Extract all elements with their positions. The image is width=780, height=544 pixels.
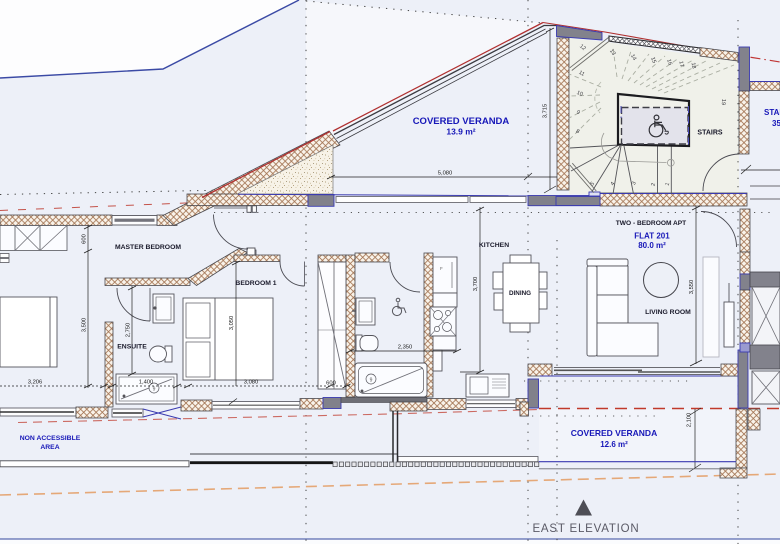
svg-text:2,100: 2,100: [687, 413, 693, 428]
svg-text:5,080: 5,080: [438, 171, 453, 177]
svg-text:BEDROOM 1: BEDROOM 1: [235, 280, 276, 287]
svg-text:17: 17: [677, 61, 684, 68]
svg-text:TWO - BEDROOM APT: TWO - BEDROOM APT: [616, 220, 686, 227]
svg-text:ENSUITE: ENSUITE: [117, 344, 147, 351]
svg-text:KITCHEN: KITCHEN: [479, 242, 509, 249]
svg-text:3,700: 3,700: [473, 277, 479, 292]
svg-text:80.0 m²: 80.0 m²: [638, 241, 666, 250]
svg-text:MASTER BEDROOM: MASTER BEDROOM: [115, 244, 181, 251]
svg-text:3,206: 3,206: [28, 380, 43, 386]
svg-text:DINING: DINING: [509, 290, 531, 297]
svg-text:EAST ELEVATION: EAST ELEVATION: [532, 523, 639, 535]
svg-text:FLAT 201: FLAT 201: [634, 232, 670, 241]
svg-text:STAIR: STAIR: [764, 108, 780, 117]
svg-text:3,080: 3,080: [244, 380, 259, 386]
svg-text:STAIRS: STAIRS: [697, 130, 722, 137]
svg-text:19: 19: [720, 99, 727, 106]
svg-text:AREA: AREA: [40, 444, 59, 451]
svg-text:LIVING ROOM: LIVING ROOM: [645, 309, 691, 316]
svg-text:600: 600: [326, 381, 336, 387]
svg-text:3,500: 3,500: [82, 318, 88, 333]
svg-text:600: 600: [82, 234, 88, 244]
svg-text:3,715: 3,715: [543, 104, 549, 119]
svg-text:COVERED VERANDA: COVERED VERANDA: [413, 116, 510, 127]
svg-text:9: 9: [153, 386, 156, 392]
svg-text:18: 18: [690, 62, 697, 69]
svg-text:F: F: [440, 266, 443, 271]
svg-text:NON ACCESSIBLE: NON ACCESSIBLE: [20, 435, 81, 442]
svg-text:13.9 m²: 13.9 m²: [446, 127, 475, 137]
svg-text:1,400: 1,400: [139, 380, 154, 386]
svg-text:3,550: 3,550: [689, 280, 695, 295]
svg-text:3,050: 3,050: [229, 316, 235, 331]
svg-text:9: 9: [370, 377, 373, 383]
svg-text:35: 35: [772, 119, 780, 128]
svg-text:12.6 m²: 12.6 m²: [600, 440, 628, 449]
svg-text:2,750: 2,750: [126, 323, 132, 338]
svg-text:2,350: 2,350: [398, 345, 413, 351]
svg-text:COVERED VERANDA: COVERED VERANDA: [571, 428, 657, 438]
